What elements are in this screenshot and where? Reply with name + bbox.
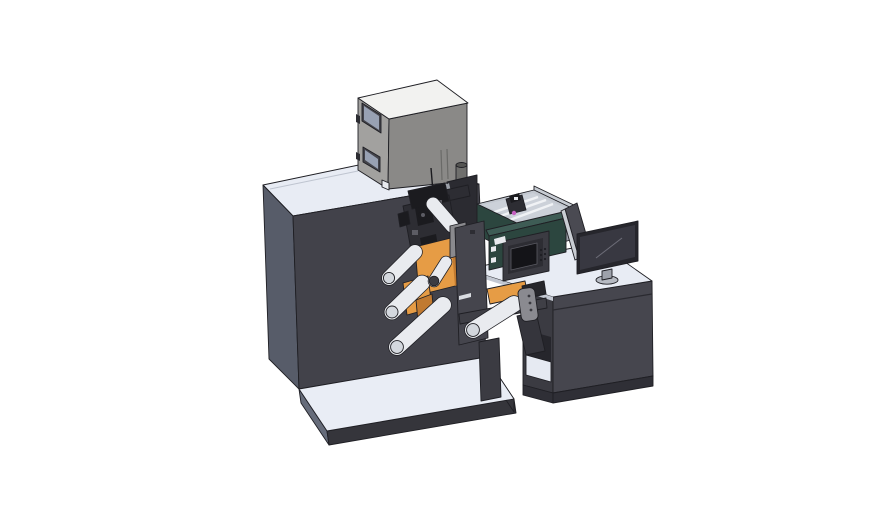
roller-3-cap xyxy=(391,341,404,354)
controller-button-dot xyxy=(540,254,542,256)
sensor-dot xyxy=(529,302,532,305)
controller-button-dot xyxy=(544,248,546,250)
controller-button-dot xyxy=(544,258,546,260)
controller-button-dot xyxy=(540,249,542,251)
roller-outfeed-cap xyxy=(467,324,480,337)
desk-front-face xyxy=(553,281,653,393)
sensor-dot xyxy=(528,295,531,298)
roller-2-cap xyxy=(386,306,398,318)
roller-1-cap xyxy=(383,272,394,283)
tray-magenta-dot xyxy=(512,211,516,215)
controller-sticker-1 xyxy=(491,246,496,252)
roller-4-cap-dark xyxy=(429,276,439,286)
controller-sticker-2 xyxy=(491,257,496,263)
mech-highlight-2 xyxy=(412,230,418,235)
controller-button-dot xyxy=(544,253,546,255)
support-leg xyxy=(479,338,501,401)
vent-cap xyxy=(456,163,467,168)
tray-cartridge-sticker xyxy=(514,197,518,200)
unwind-plate-detail xyxy=(470,230,475,234)
sensor-dot xyxy=(530,309,533,312)
mech-left-block xyxy=(398,211,410,227)
monitor-neck xyxy=(602,269,612,280)
dryer-box xyxy=(356,80,468,190)
mech-hub-center xyxy=(421,213,425,217)
cad-viewport xyxy=(0,0,888,522)
controller-button-dot xyxy=(540,259,542,261)
